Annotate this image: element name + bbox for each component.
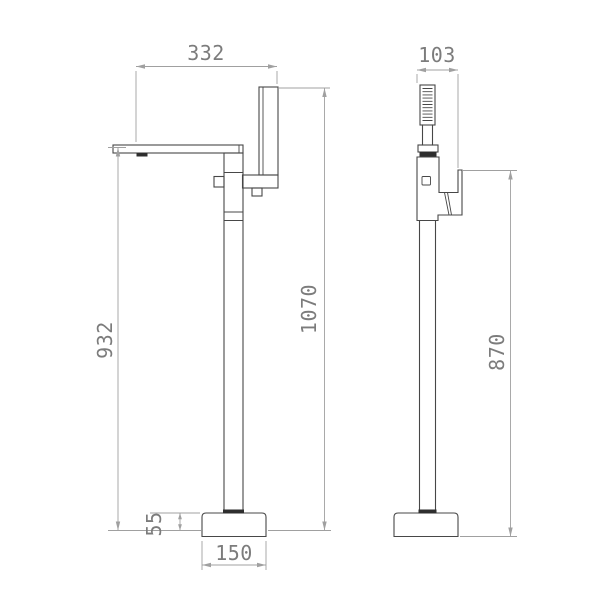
base-joint-front — [223, 510, 244, 514]
shower-head-spray-lines — [423, 89, 433, 121]
dimension-label: 870 — [485, 333, 509, 371]
dimension-base-width: 150 — [202, 541, 266, 570]
holder-connector — [252, 188, 262, 196]
mixer-body-side — [417, 157, 462, 221]
aerator — [137, 153, 148, 157]
spout — [113, 145, 243, 153]
hand-shower-holder — [259, 87, 278, 175]
dimension-base-height: 55 — [142, 511, 200, 536]
dimension-label: 103 — [418, 43, 456, 67]
holder-collar — [418, 145, 438, 152]
base-front — [202, 513, 266, 537]
mixer-handle-front — [214, 177, 224, 188]
drawing-canvas: 332 103 1070 932 870 55 150 — [0, 0, 600, 600]
side-view — [394, 85, 462, 537]
collar-band — [420, 152, 437, 157]
holder-arm — [243, 175, 279, 188]
dimension-label: 55 — [142, 511, 166, 536]
dimension-label: 932 — [93, 321, 117, 359]
base-side — [394, 513, 458, 537]
dimension-label: 1070 — [297, 284, 321, 334]
dimension-label: 150 — [215, 541, 253, 565]
dimension-label: 332 — [187, 41, 225, 65]
diverter-button — [422, 177, 431, 186]
dimension-spout-height: 932 — [93, 148, 201, 531]
shower-head — [420, 85, 435, 125]
base-joint-side — [419, 510, 437, 514]
dimension-handle-height: 870 — [460, 171, 517, 537]
column-front — [224, 153, 243, 512]
technical-drawing-page: 332 103 1070 932 870 55 150 — [0, 0, 600, 600]
front-view — [113, 87, 278, 537]
dimension-spout-reach: 332 — [136, 41, 277, 142]
